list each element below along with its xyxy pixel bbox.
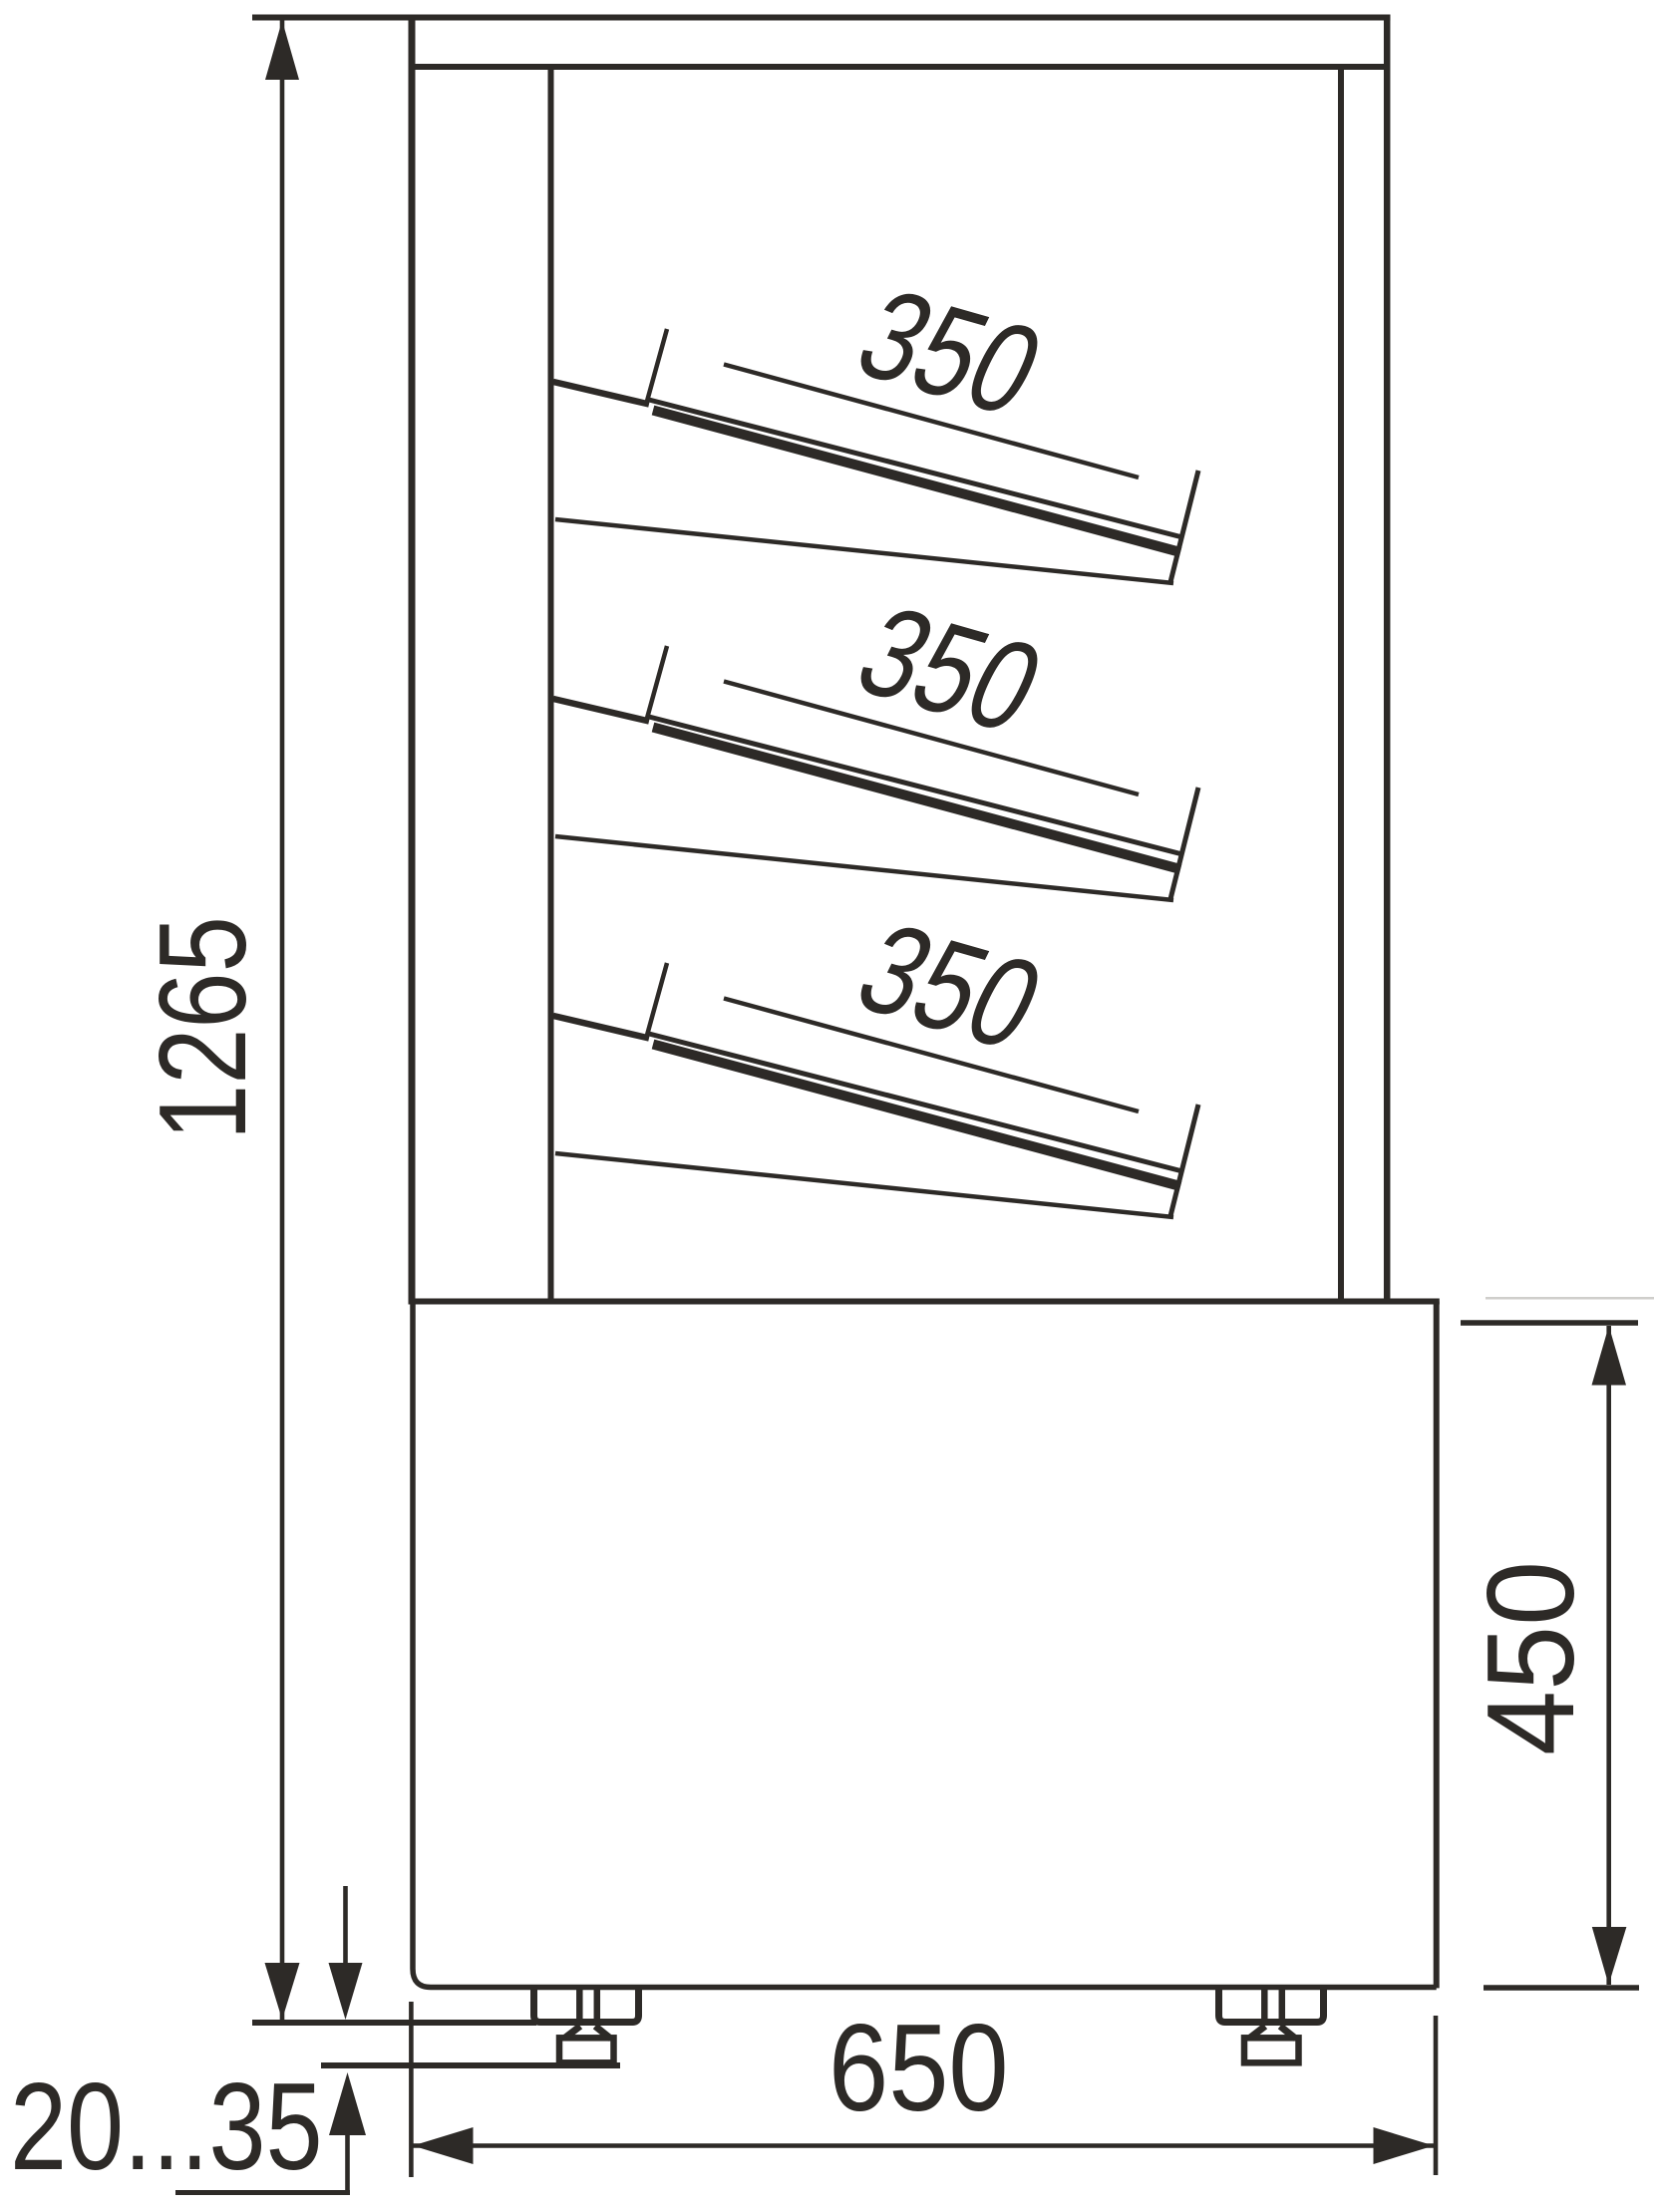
svg-text:650: 650 — [828, 1999, 1009, 2136]
svg-text:1265: 1265 — [134, 916, 271, 1140]
svg-text:20...35: 20...35 — [10, 2058, 323, 2196]
svg-text:450: 450 — [1462, 1561, 1600, 1755]
